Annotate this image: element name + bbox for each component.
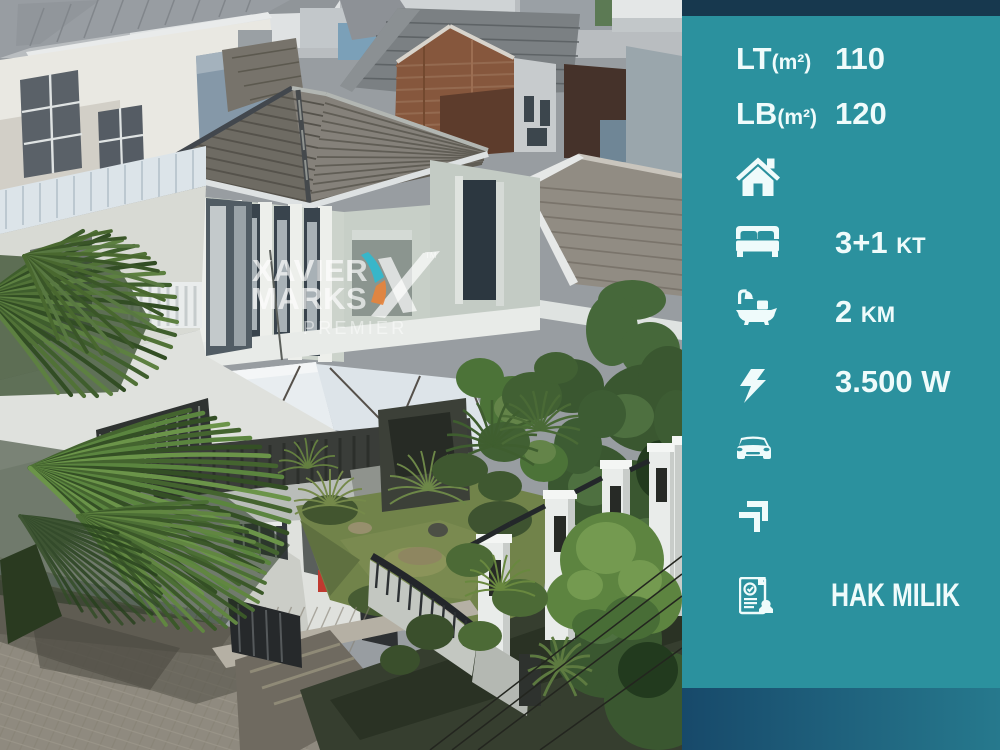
svg-text:MARKS: MARKS <box>251 281 367 316</box>
svg-text:PREMIER: PREMIER <box>303 318 407 338</box>
svg-text:TM: TM <box>425 251 437 260</box>
